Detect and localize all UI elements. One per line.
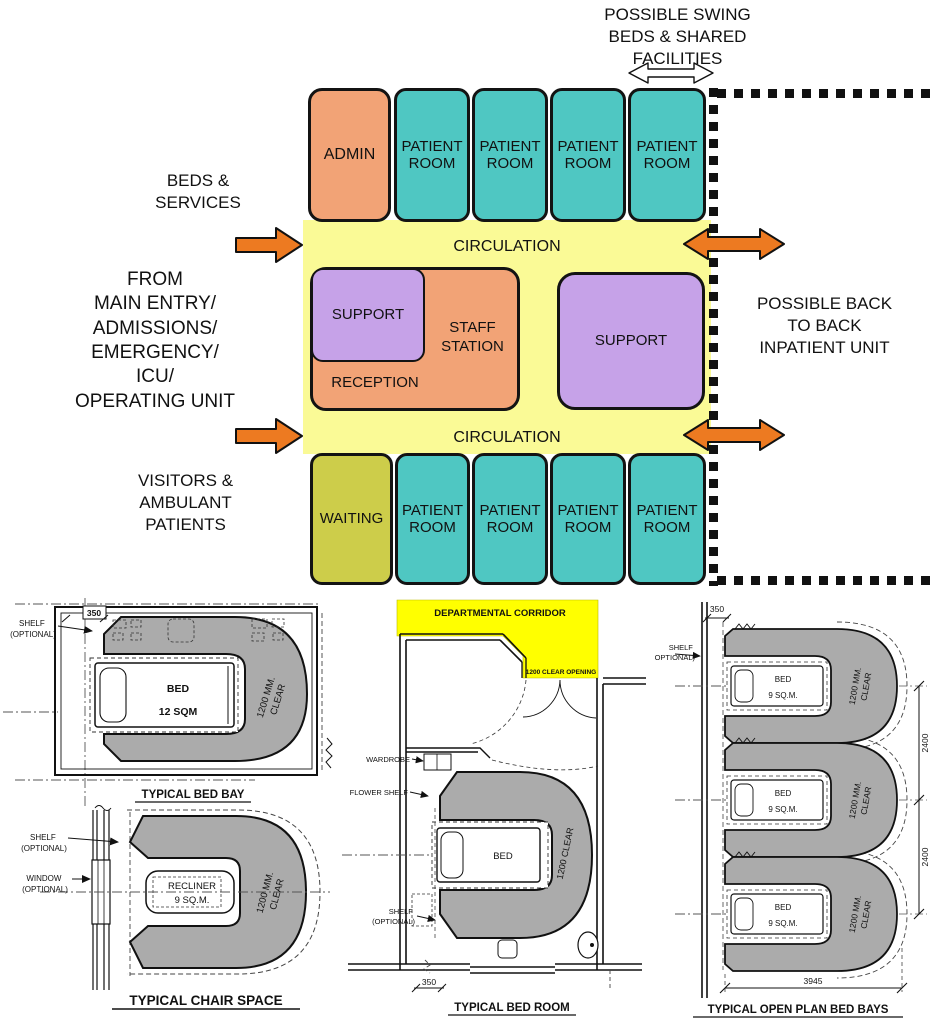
entry-arrow-top xyxy=(234,226,304,264)
corridor-label: DEPARTMENTAL CORRIDOR xyxy=(434,608,566,619)
bed-bay-bed-label: BED xyxy=(167,683,190,695)
visitor-chair xyxy=(498,940,517,958)
open-plan-shelf-label: SHELF (OPTIONAL) xyxy=(655,643,696,662)
back-to-back-arrow-bottom xyxy=(682,415,786,455)
bed-pillow xyxy=(441,832,463,878)
wall-break-symbol xyxy=(326,738,332,768)
dim-2400-upper: 2400 xyxy=(920,733,930,752)
swing-arrow xyxy=(627,60,715,87)
flower-shelf-label: FLOWER SHELF xyxy=(350,788,409,797)
recliner-label: RECLINER xyxy=(168,881,216,892)
bed-room-title: TYPICAL BED ROOM xyxy=(454,1002,569,1014)
dim-3945: 3945 xyxy=(804,976,823,986)
bed-pillow xyxy=(100,668,126,722)
patient-room-block: PATIENT ROOM xyxy=(628,453,706,585)
dotted-boundary-vertical xyxy=(709,88,718,586)
bed-room-shelf-label: SHELF (OPTIONAL) xyxy=(372,907,415,926)
chair-space-drawing: RECLINER 9 SQ.M. 1200 MM. CLEAR SHELF (O… xyxy=(21,806,330,1010)
bed-room-dim-350: 350 xyxy=(422,977,436,987)
bed-bay-1: BED 9 SQ.M. 1200 MM. CLEAR xyxy=(675,624,897,743)
patient-room-block: PATIENT ROOM xyxy=(394,88,470,222)
wardrobe xyxy=(424,754,451,770)
dim-2400-lower: 2400 xyxy=(920,847,930,866)
hospital-inpatient-unit-diagram: POSSIBLE SWING BEDS & SHARED FACILITIES … xyxy=(0,0,940,1024)
patient-room-block: PATIENT ROOM xyxy=(395,453,470,585)
staff-station-label: STAFF STATION xyxy=(425,318,520,356)
patient-room-block: PATIENT ROOM xyxy=(472,88,548,222)
bed-bay-title: TYPICAL BED BAY xyxy=(142,789,245,801)
open-plan-bed-bays-drawing: 350 SHELF (OPTIONAL) BED 9 SQ.M. 1200 MM… xyxy=(655,598,940,1024)
bed-bay-drawing: 350 BED 12 SQM 1200 MM. CLEAR xyxy=(3,598,332,806)
patient-room-block: PATIENT ROOM xyxy=(550,453,626,585)
back-to-back-arrow-top xyxy=(682,224,786,264)
support-block-left: SUPPORT xyxy=(311,268,425,362)
beds-services-annotation: BEDS & SERVICES xyxy=(118,170,278,214)
shelf-zone xyxy=(412,894,432,926)
chair-shelf-label: SHELF (OPTIONAL) xyxy=(21,833,67,853)
back-to-back-annotation: POSSIBLE BACK TO BACK INPATIENT UNIT xyxy=(722,293,927,358)
admin-block: ADMIN xyxy=(308,88,391,222)
bed-bay-2: BED 9 SQ.M. 1200 MM. CLEAR xyxy=(675,738,897,857)
bay2-bed-label: BED xyxy=(775,789,792,798)
clear-opening-label: 1200 CLEAR OPENING xyxy=(526,669,596,676)
window-label: WINDOW (OPTIONAL) xyxy=(22,874,68,894)
bed-bay-shelf-label: SHELF (OPTIONAL) xyxy=(10,619,56,639)
bed-bay-3: BED 9 SQ.M. 1200 MM. CLEAR xyxy=(675,852,897,971)
chair-space-title: TYPICAL CHAIR SPACE xyxy=(129,993,282,1008)
dotted-boundary-bottom xyxy=(717,576,938,585)
patient-room-block: PATIENT ROOM xyxy=(472,453,548,585)
bed-bay-and-chair-space-drawing: 350 BED 12 SQM 1200 MM. CLEAR xyxy=(0,598,345,1024)
washbasin xyxy=(578,932,598,958)
circulation-label-top: CIRCULATION xyxy=(303,237,711,257)
open-plan-dim-350: 350 xyxy=(710,604,724,614)
bed-room-drawing: DEPARTMENTAL CORRIDOR 1200 CLEAR OPENING… xyxy=(340,598,660,1024)
bay2-bed-area: 9 SQ.M. xyxy=(768,805,797,814)
circulation-label-bottom: CIRCULATION xyxy=(303,428,711,448)
patient-room-block: PATIENT ROOM xyxy=(550,88,626,222)
bed-bay-bed-area: 12 SQM xyxy=(159,706,198,718)
bed-room-bed-label: BED xyxy=(493,851,513,862)
wardrobe-label: WARDROBE xyxy=(366,755,410,764)
patient-room-block: PATIENT ROOM xyxy=(628,88,706,222)
waiting-block: WAITING xyxy=(310,453,393,585)
entry-arrow-bottom xyxy=(234,417,304,455)
visitors-annotation: VISITORS & AMBULANT PATIENTS xyxy=(98,470,273,535)
bay3-bed-label: BED xyxy=(775,903,792,912)
recliner-area: 9 SQ.M. xyxy=(175,895,210,906)
support-block-right: SUPPORT xyxy=(557,272,705,410)
bay3-bed-area: 9 SQ.M. xyxy=(768,919,797,928)
dotted-boundary-top xyxy=(717,89,938,98)
open-plan-title: TYPICAL OPEN PLAN BED BAYS xyxy=(708,1004,889,1016)
from-main-entry-annotation: FROM MAIN ENTRY/ ADMISSIONS/ EMERGENCY/ … xyxy=(15,268,295,414)
bay1-bed-label: BED xyxy=(775,675,792,684)
reception-label: RECEPTION xyxy=(315,373,435,392)
bay1-bed-area: 9 SQ.M. xyxy=(768,691,797,700)
bed-bay-dim-350: 350 xyxy=(87,608,101,618)
